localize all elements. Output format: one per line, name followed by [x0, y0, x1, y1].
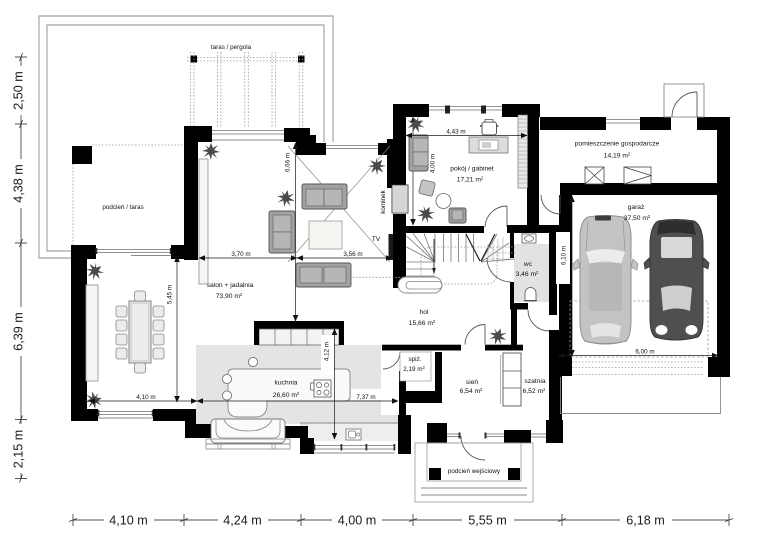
- svg-text:4,10 m: 4,10 m: [136, 394, 155, 401]
- svg-text:5,55 m: 5,55 m: [468, 514, 507, 528]
- svg-text:3,70 m: 3,70 m: [231, 251, 250, 258]
- svg-text:3,46 m2: 3,46 m2: [516, 270, 539, 278]
- svg-text:14,19 m2: 14,19 m2: [604, 152, 631, 160]
- svg-text:sień: sień: [466, 379, 479, 386]
- svg-text:15,66 m2: 15,66 m2: [409, 319, 436, 327]
- svg-text:26,60 m2: 26,60 m2: [273, 391, 300, 399]
- svg-text:6,10 m: 6,10 m: [561, 246, 568, 265]
- svg-text:6,39 m: 6,39 m: [12, 312, 26, 351]
- svg-text:4,12 m: 4,12 m: [324, 342, 331, 361]
- svg-text:szatnia: szatnia: [524, 378, 545, 385]
- svg-text:4,00 m: 4,00 m: [338, 514, 377, 528]
- svg-text:4,43 m: 4,43 m: [446, 129, 465, 136]
- svg-text:3,56 m: 3,56 m: [343, 251, 362, 258]
- svg-text:garaż: garaż: [628, 204, 645, 211]
- svg-text:spiż.: spiż.: [409, 356, 422, 363]
- svg-text:taras / pergola: taras / pergola: [211, 44, 252, 51]
- svg-text:podcień wejściowy: podcień wejściowy: [448, 468, 501, 475]
- svg-text:6,66 m: 6,66 m: [285, 153, 292, 172]
- svg-text:podcień / taras: podcień / taras: [102, 204, 143, 211]
- svg-text:kominek: kominek: [380, 189, 387, 213]
- svg-text:7,37 m: 7,37 m: [356, 394, 375, 401]
- svg-text:6,54 m2: 6,54 m2: [460, 387, 483, 395]
- svg-text:2,15 m: 2,15 m: [12, 430, 26, 469]
- svg-text:6,52 m2: 6,52 m2: [523, 387, 546, 395]
- svg-text:4,38 m: 4,38 m: [12, 164, 26, 203]
- svg-text:4,24 m: 4,24 m: [223, 514, 262, 528]
- svg-text:2,19 m2: 2,19 m2: [403, 365, 425, 373]
- svg-text:pokój / gabinet: pokój / gabinet: [450, 166, 494, 173]
- svg-text:2,50 m: 2,50 m: [12, 71, 26, 110]
- svg-text:6,18 m: 6,18 m: [626, 514, 665, 528]
- svg-text:kuchnia: kuchnia: [274, 380, 297, 387]
- svg-text:17,21 m2: 17,21 m2: [457, 176, 484, 184]
- svg-text:73,90 m2: 73,90 m2: [216, 292, 243, 300]
- svg-text:4,10 m: 4,10 m: [109, 514, 148, 528]
- svg-text:salon + jadalnia: salon + jadalnia: [207, 282, 254, 289]
- svg-text:37,50 m2: 37,50 m2: [624, 214, 651, 222]
- svg-text:4,00 m: 4,00 m: [430, 154, 437, 173]
- svg-text:pomieszczenie gospodarcze: pomieszczenie gospodarcze: [575, 141, 660, 148]
- svg-text:5,45 m: 5,45 m: [167, 285, 174, 304]
- svg-text:wc: wc: [523, 261, 533, 268]
- svg-text:TV: TV: [372, 236, 381, 243]
- svg-text:6,00 m: 6,00 m: [635, 349, 654, 356]
- svg-text:hol: hol: [420, 309, 429, 316]
